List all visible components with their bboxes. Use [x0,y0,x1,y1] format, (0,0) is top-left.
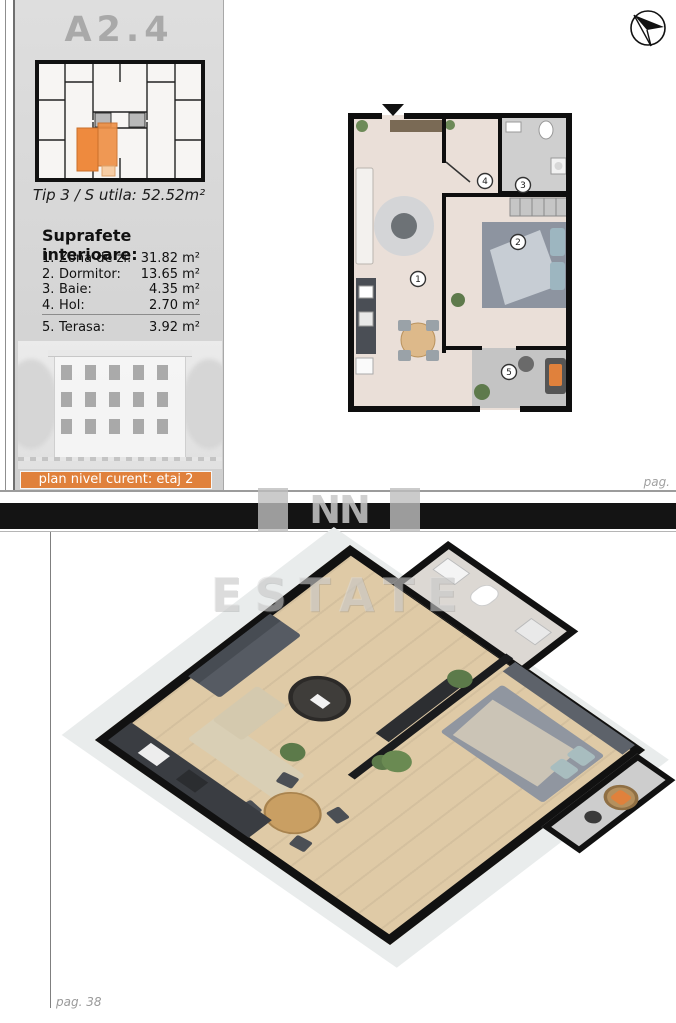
page-label-top: pag. [644,475,670,489]
room-number-badge: 2 [511,235,526,250]
watermark-text: ESTATE [170,568,510,622]
svg-text:1: 1 [415,275,421,285]
tree [182,359,222,449]
level-bar: plan nivel curent: etaj 2 [20,471,212,489]
watermark-logo: NN [258,487,420,532]
room-row: 3. Baie: 4.35 m² [42,282,200,298]
svg-text:3: 3 [520,181,526,191]
terrace-row: 5. Terasa: 3.92 m² [42,320,200,336]
building-elevation-photo [18,341,222,469]
room-list: 1. Zona de zi: 31.82 m² 2. Dormitor: 13.… [42,251,200,313]
room-number-badge: 4 [478,174,493,189]
svg-text:5: 5 [506,368,512,378]
room-row: 4. Hol: 2.70 m² [42,298,200,314]
room-row: 2. Dormitor: 13.65 m² [42,267,200,283]
page-label-bottom: pag. 38 [56,995,102,1009]
entrance-arrow-icon [382,104,404,116]
room-number-badge: 5 [502,365,517,380]
top-margin-line [5,0,6,491]
room-number-badge: 1 [411,272,426,287]
unit-code: A2.4 [15,10,223,50]
watermark-logo-letters: NN [288,488,390,532]
fence [18,457,222,461]
type-line: Tip 3 / S utila: 52.52m² [15,186,223,204]
room-number-badge: 3 [516,178,531,193]
svg-text:2: 2 [515,238,521,248]
sidebar: A2.4 Tip 3 / S utila: 52.52m² [13,0,224,491]
floor-plan-2d: 1 2 3 4 5 [330,100,580,420]
list-divider [42,314,200,315]
terrace-chair-3d [596,780,645,816]
room-row: 1. Zona de zi: 31.82 m² [42,251,200,267]
building [55,357,185,457]
north-arrow-icon [626,6,670,50]
floor-overview-plan [35,60,205,182]
brochure-page: A2.4 Tip 3 / S utila: 52.52m² [0,0,676,1023]
stair-core-right [129,113,145,127]
highlighted-unit [77,123,117,176]
tree [18,359,58,449]
svg-text:4: 4 [482,177,488,187]
bottom-margin-line [50,532,51,1008]
